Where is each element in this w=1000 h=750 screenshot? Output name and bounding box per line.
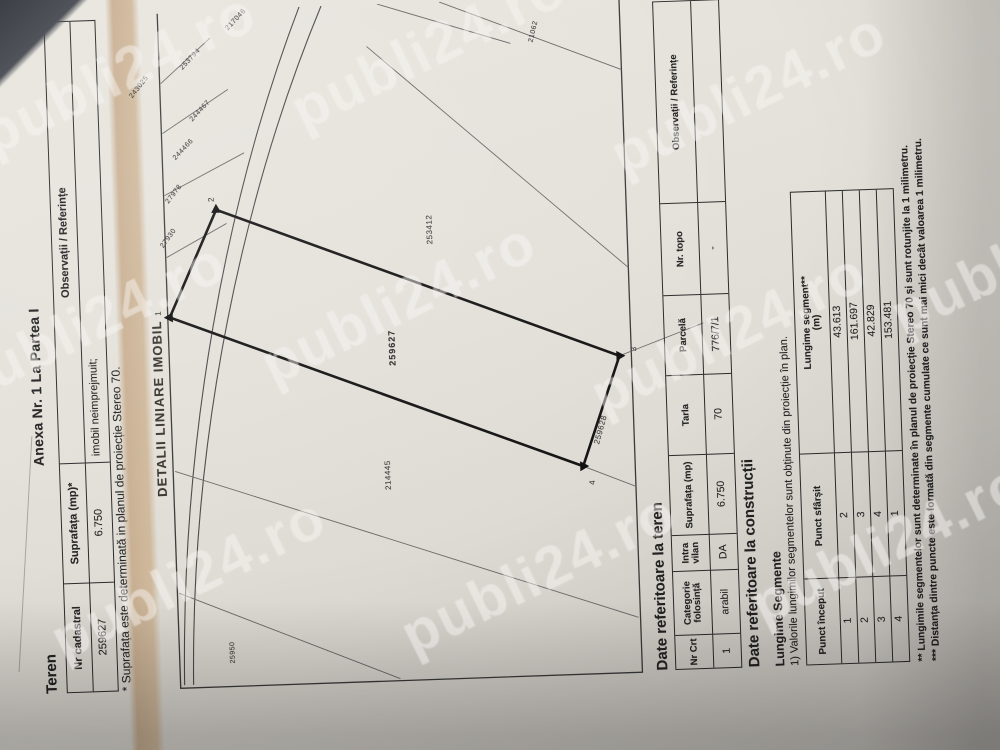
cell-nr-topo: -: [697, 202, 728, 295]
cadastral-document: Anexa Nr. 1 La Partea I Teren Nr cadastr…: [0, 0, 1000, 750]
vertex-number: 1: [154, 311, 163, 316]
cell-categorie: arabil: [710, 570, 740, 635]
cell-nr-crt: 1: [712, 634, 741, 668]
seg-end: 1: [885, 451, 906, 577]
vertex-number: 4: [588, 480, 597, 485]
col-categorie: Categorie folosință: [673, 571, 712, 636]
vertex-number: 3: [629, 346, 638, 351]
col-punct-sfarsit: Punct sfârșit: [800, 453, 838, 579]
col-tarla: Tarla: [666, 375, 706, 456]
col-suprafata: Suprafața (mp): [669, 455, 709, 536]
segments-table: Punct început Punct sfârșit Lungime segm…: [790, 188, 910, 665]
cell-tarla: 70: [703, 374, 734, 455]
col-punct-inceput: Punct început: [804, 578, 841, 664]
vertex-number: 2: [207, 197, 216, 202]
cell-intravilan: DA: [709, 534, 738, 571]
col-nr-crt: Nr Crt: [675, 635, 713, 669]
parcel-number-label: 259627: [386, 330, 397, 366]
cell-parcela: 776/7/1: [700, 294, 731, 375]
cell-observatii: [690, 0, 725, 203]
col-intravilan: Intra vilan: [672, 535, 710, 572]
neighbor-parcel-label: 253412: [424, 215, 434, 245]
photo-frame: Anexa Nr. 1 La Partea I Teren Nr cadastr…: [0, 0, 1000, 750]
cell-suprafata: 6.750: [706, 454, 737, 535]
col-parcela: Parcelă: [663, 295, 703, 376]
neighbor-parcel-label: 25950: [229, 641, 237, 663]
seg-start: 4: [889, 576, 909, 662]
neighbor-parcel-label: 214445: [383, 460, 393, 490]
col-nr-topo: Nr. topo: [660, 203, 700, 296]
